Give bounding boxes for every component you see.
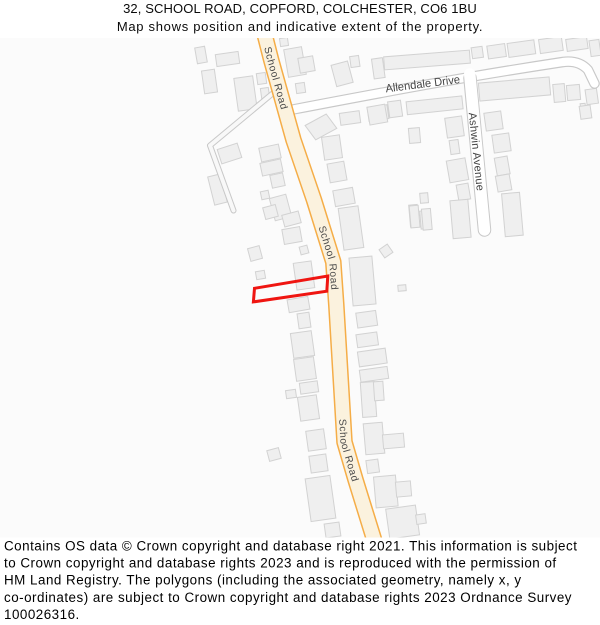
svg-text:co-ordinates) are subject to C: co-ordinates) are subject to Crown copyr… (4, 590, 572, 605)
svg-text:Contains OS data © Crown copyr: Contains OS data © Crown copyright and d… (4, 539, 577, 554)
svg-text:HM Land Registry. The polygons: HM Land Registry. The polygons (includin… (4, 573, 522, 588)
svg-text:32, SCHOOL ROAD, COPFORD, COLC: 32, SCHOOL ROAD, COPFORD, COLCHESTER, CO… (123, 1, 477, 16)
svg-text:Map shows position and indicat: Map shows position and indicative extent… (117, 19, 483, 34)
svg-text:100026316.: 100026316. (4, 607, 80, 622)
svg-text:to Crown copyright and databas: to Crown copyright and database rights 2… (4, 556, 557, 571)
